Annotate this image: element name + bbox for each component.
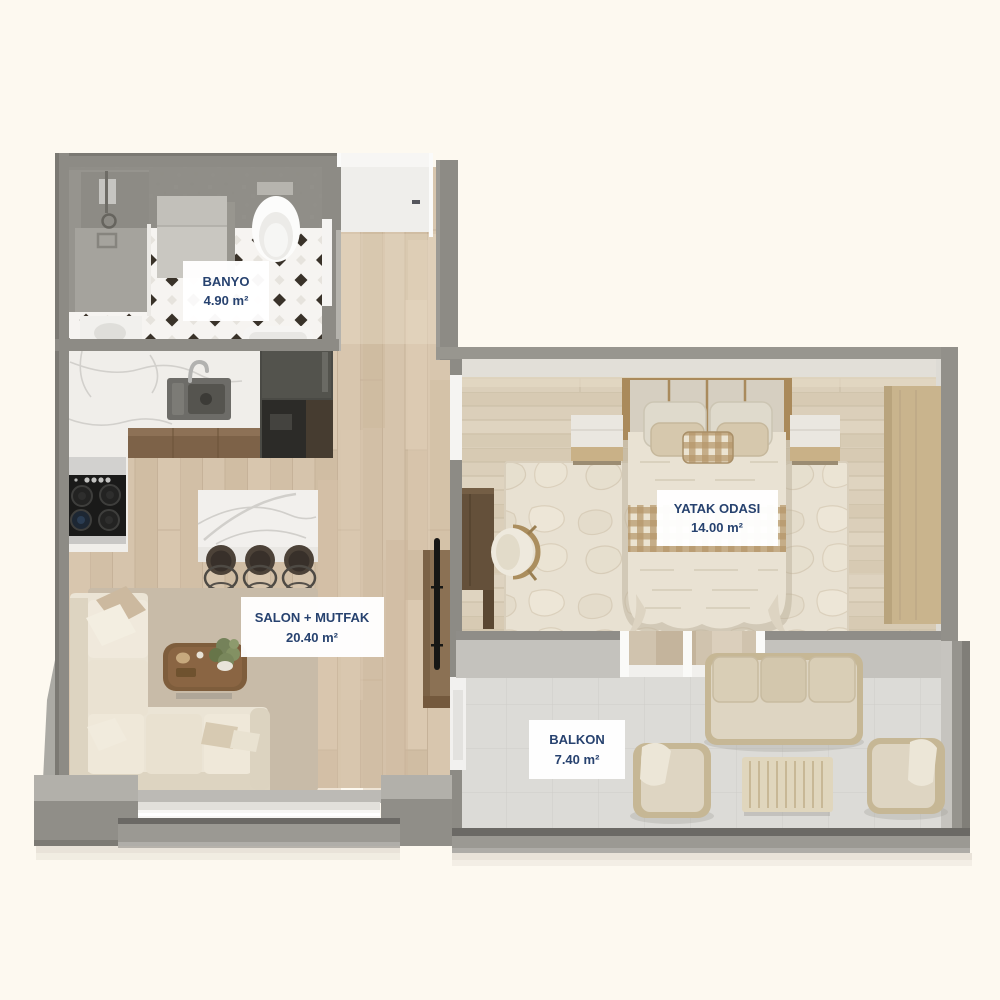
svg-text:BANYO: BANYO — [203, 274, 250, 289]
svg-text:7.40 m²: 7.40 m² — [555, 752, 600, 767]
svg-text:14.00 m²: 14.00 m² — [691, 520, 744, 535]
svg-text:4.90 m²: 4.90 m² — [204, 293, 249, 308]
svg-text:BALKON: BALKON — [549, 732, 605, 747]
svg-text:SALON + MUTFAK: SALON + MUTFAK — [255, 610, 370, 625]
svg-text:YATAK ODASI: YATAK ODASI — [674, 501, 760, 516]
svg-text:20.40 m²: 20.40 m² — [286, 630, 339, 645]
